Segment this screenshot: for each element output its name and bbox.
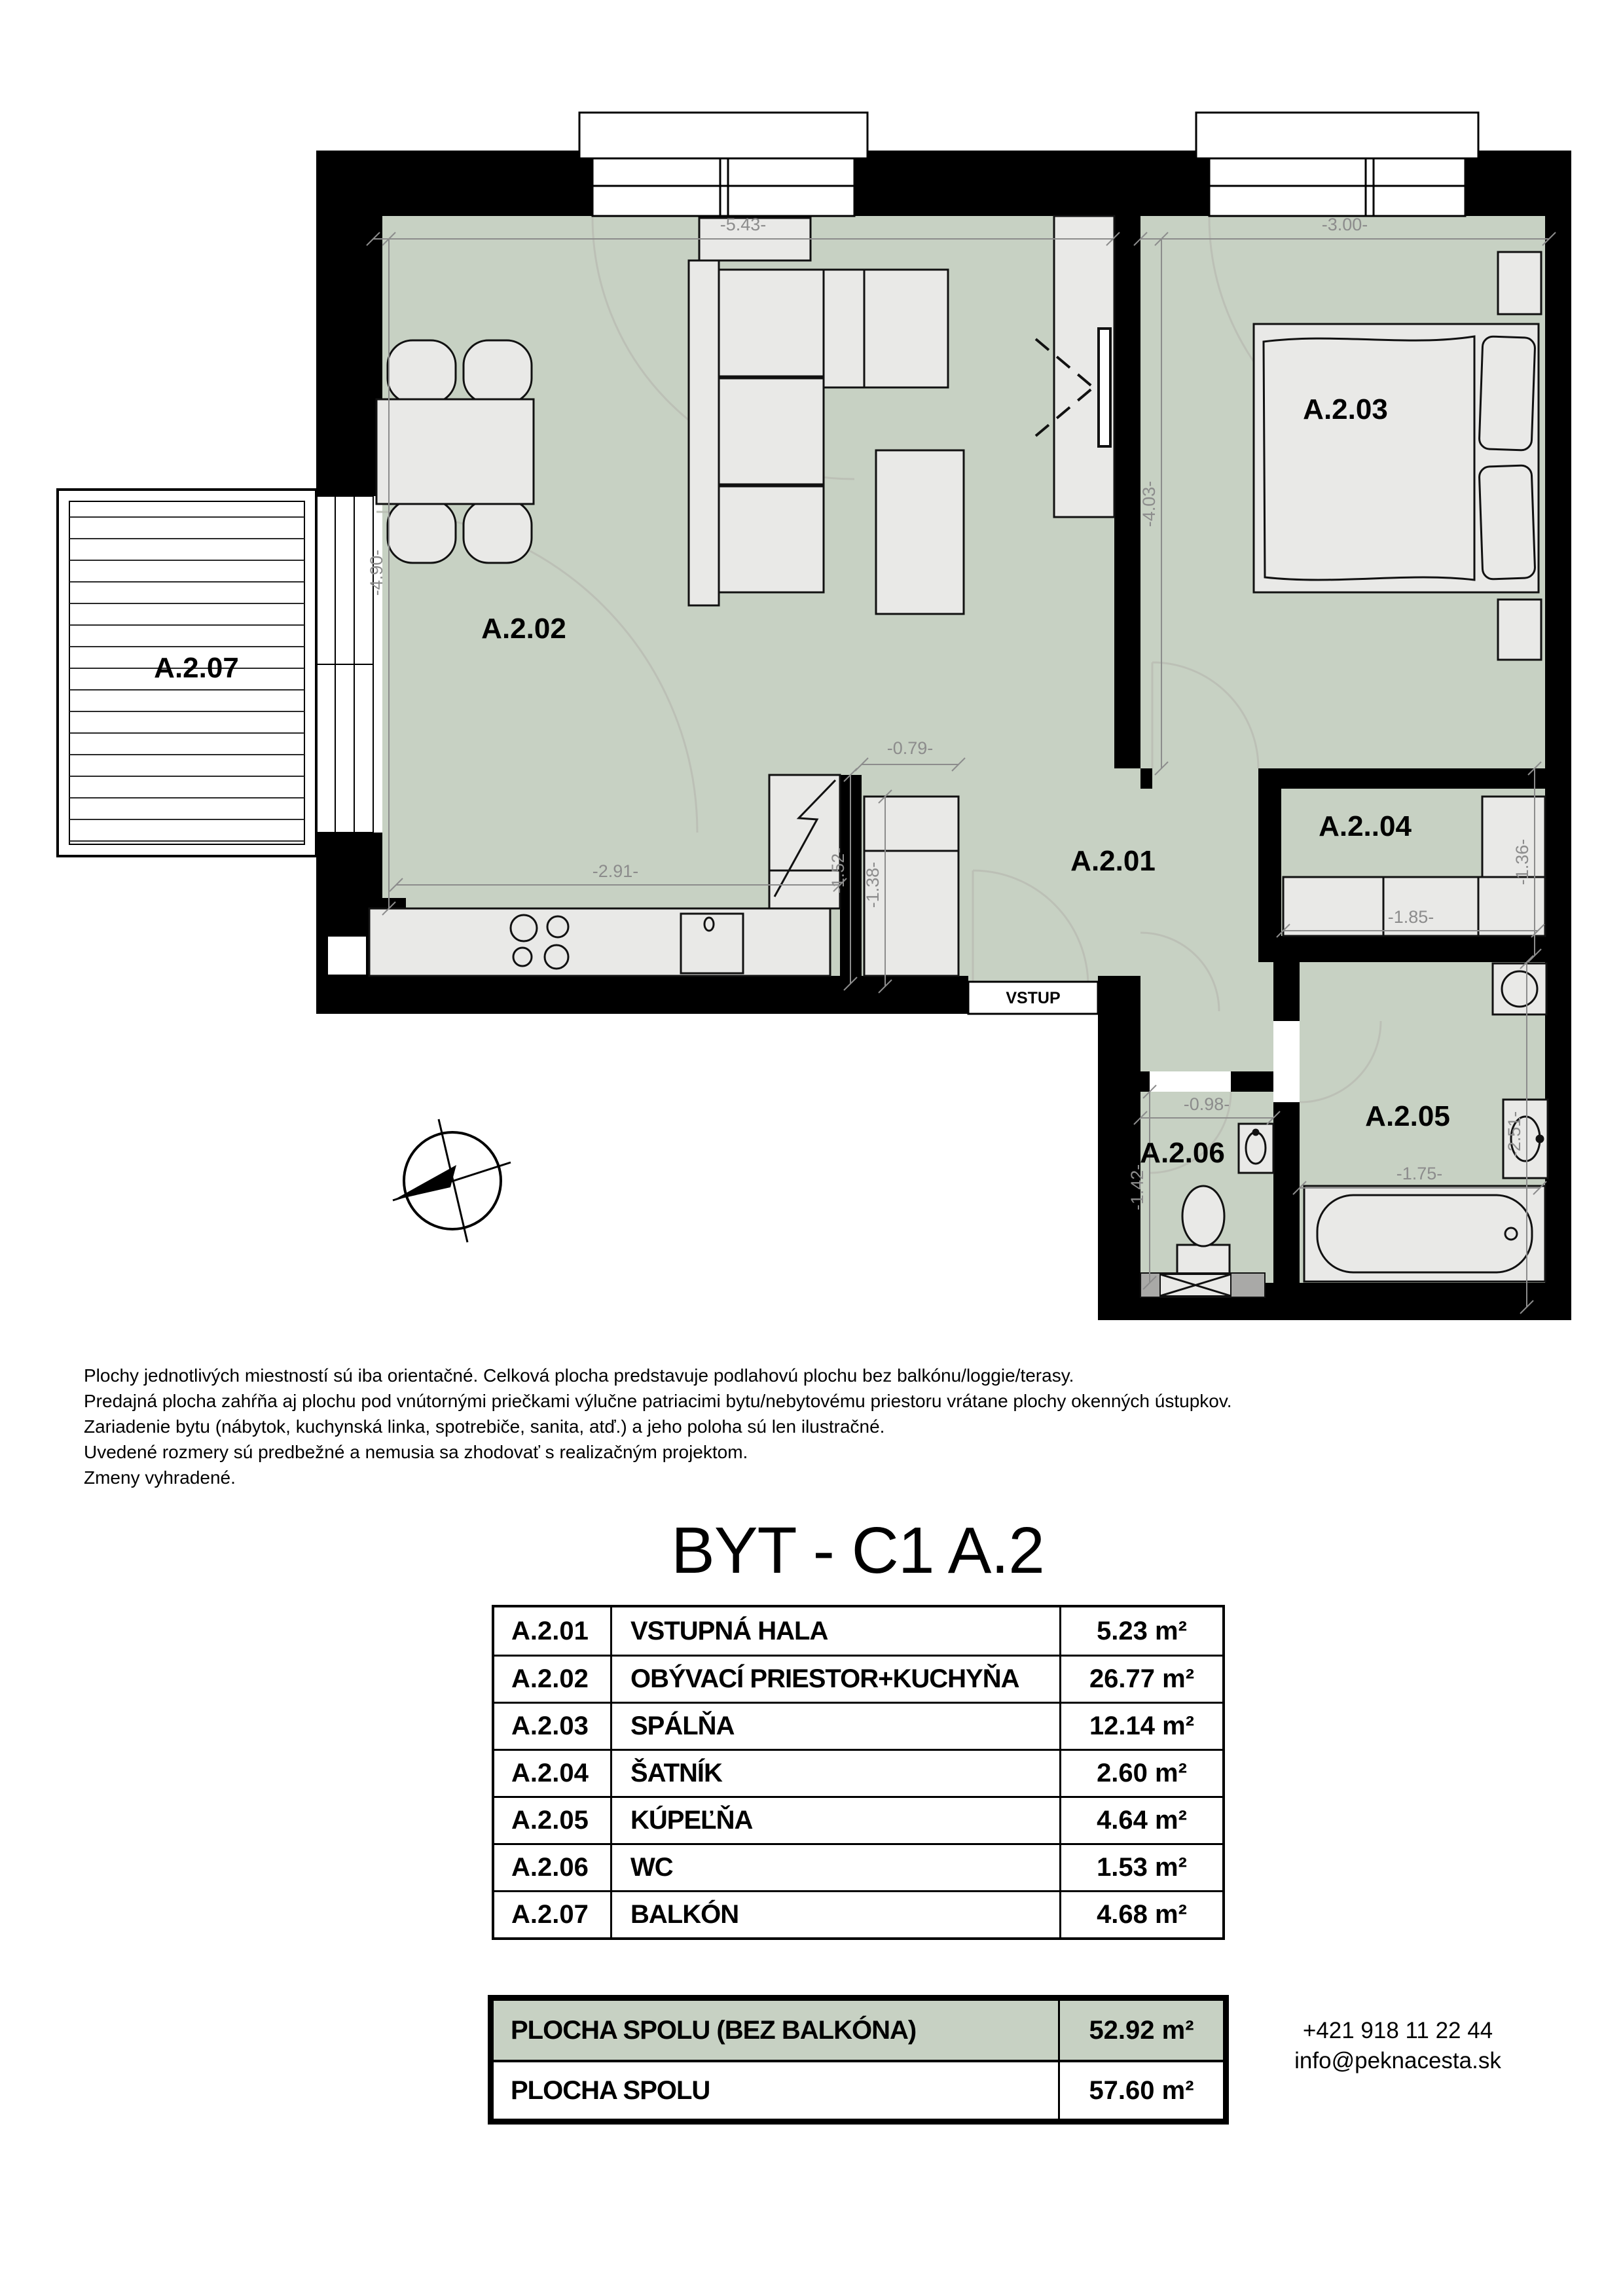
totals-table: PLOCHA SPOLU (BEZ BALKÓNA) 52.92 m² PLOC… [488, 1995, 1229, 2125]
svg-text:-1.75-: -1.75- [1396, 1164, 1443, 1183]
room-area: 12.14 m² [1061, 1704, 1222, 1749]
bathtub [1304, 1186, 1545, 1282]
wc-sink [1239, 1124, 1273, 1173]
disclaimer-line: Predajná plocha zahŕňa aj plochu pod vnú… [84, 1388, 1232, 1414]
sofa-back [689, 260, 719, 605]
living-window [579, 113, 867, 216]
sofa-seat [719, 270, 824, 376]
dining-set [376, 340, 534, 563]
total-row-overall: PLOCHA SPOLU 57.60 m² [494, 2060, 1223, 2119]
contact-block: +421 918 11 22 44 info@peknacesta.sk [1277, 2016, 1519, 2076]
disclaimer-line: Zmeny vyhradené. [84, 1465, 1232, 1490]
chair [464, 500, 532, 563]
sofa-chaise [824, 270, 948, 387]
chair [388, 500, 456, 563]
total-label: PLOCHA SPOLU [494, 2062, 1058, 2119]
pillow [1479, 336, 1535, 451]
room-area: 26.77 m² [1061, 1657, 1222, 1702]
svg-text:-1.42-: -1.42- [1127, 1164, 1147, 1211]
room-area: 4.64 m² [1061, 1798, 1222, 1843]
svg-text:A.2.05: A.2.05 [1365, 1100, 1450, 1132]
svg-text:-1.36-: -1.36- [1512, 839, 1532, 886]
svg-text:-2.51-: -2.51- [1504, 1111, 1524, 1158]
compass-needle [393, 1165, 456, 1200]
total-row-without-balcony: PLOCHA SPOLU (BEZ BALKÓNA) 52.92 m² [494, 2001, 1223, 2060]
svg-text:-4.90-: -4.90- [367, 550, 386, 596]
table-row: A.2.02 OBÝVACÍ PRIESTOR+KUCHYŇA 26.77 m² [494, 1655, 1222, 1702]
room-name: OBÝVACÍ PRIESTOR+KUCHYŇA [612, 1657, 1061, 1702]
room-area: 4.68 m² [1061, 1892, 1222, 1937]
table-row: A.2.07 BALKÓN 4.68 m² [494, 1890, 1222, 1937]
shaft-box [327, 936, 367, 975]
disclaimer-line: Plochy jednotlivých miestností sú iba or… [84, 1363, 1232, 1388]
contact-phone: +421 918 11 22 44 [1277, 2016, 1519, 2046]
room-code: A.2.01 [494, 1607, 612, 1655]
disclaimer-line: Uvedené rozmery sú predbežné a nemusia s… [84, 1439, 1232, 1465]
entrance-label: VSTUP [1006, 989, 1060, 1007]
room-area: 5.23 m² [1061, 1607, 1222, 1655]
table-row: A.2.06 WC 1.53 m² [494, 1843, 1222, 1890]
disclaimer-notes: Plochy jednotlivých miestností sú iba or… [84, 1363, 1232, 1490]
svg-text:-3.00-: -3.00- [1322, 215, 1368, 234]
svg-text:A.2.06: A.2.06 [1140, 1137, 1225, 1169]
table-row: A.2.01 VSTUPNÁ HALA 5.23 m² [494, 1607, 1222, 1655]
page-title: BYT - C1 A.2 [484, 1513, 1231, 1588]
table-row: A.2.05 KÚPEĽŇA 4.64 m² [494, 1796, 1222, 1843]
svg-text:-4.03-: -4.03- [1139, 481, 1159, 528]
disclaimer-line: Zariadenie bytu (nábytok, kuchynská link… [84, 1414, 1232, 1439]
room-code: A.2.04 [494, 1751, 612, 1796]
kitchen-sink [681, 914, 743, 973]
svg-text:-1.38-: -1.38- [863, 862, 883, 908]
total-area: 57.60 m² [1058, 2062, 1223, 2119]
room-name: KÚPEĽŇA [612, 1798, 1061, 1843]
toilet [1177, 1186, 1230, 1275]
svg-text:-1.85-: -1.85- [1388, 907, 1434, 927]
room-name: ŠATNÍK [612, 1751, 1061, 1796]
room-name: BALKÓN [612, 1892, 1061, 1937]
table-row: A.2.03 SPÁLŇA 12.14 m² [494, 1702, 1222, 1749]
floorplan-page: VSTUP [0, 0, 1623, 2296]
chair [464, 340, 532, 403]
svg-text:A.2.01: A.2.01 [1070, 845, 1156, 877]
area-table: A.2.01 VSTUPNÁ HALA 5.23 m² A.2.02 OBÝVA… [492, 1605, 1225, 1940]
balcony-door [316, 496, 373, 833]
sofa-seat [719, 378, 824, 484]
room-area: 1.53 m² [1061, 1845, 1222, 1890]
compass-rose [393, 1119, 511, 1242]
nightstand [1498, 252, 1541, 314]
svg-text:A.2.02: A.2.02 [481, 613, 566, 645]
dining-table [376, 399, 534, 504]
room-name: WC [612, 1845, 1061, 1890]
vent-shaft [1140, 1273, 1265, 1297]
washing-machine [1493, 963, 1546, 1014]
svg-text:-5.43-: -5.43- [720, 215, 767, 234]
corridor-floor [1140, 768, 1273, 1071]
svg-text:-0.98-: -0.98- [1184, 1094, 1230, 1114]
kitchen-counter [369, 908, 830, 976]
svg-text:-0.79-: -0.79- [887, 738, 934, 758]
floorplan-drawing: VSTUP [0, 0, 1623, 1348]
total-label: PLOCHA SPOLU (BEZ BALKÓNA) [494, 2001, 1058, 2060]
contact-email: info@peknacesta.sk [1277, 2046, 1519, 2076]
svg-text:A.2.07: A.2.07 [154, 652, 239, 684]
total-area: 52.92 m² [1058, 2001, 1223, 2060]
chair [388, 340, 456, 403]
svg-text:A.2.03: A.2.03 [1303, 393, 1388, 425]
duvet [1264, 336, 1474, 580]
svg-text:-1.52-: -1.52- [828, 848, 848, 894]
entrance: VSTUP [968, 982, 1098, 1014]
sofa-seat [719, 486, 824, 592]
svg-text:-2.91-: -2.91- [593, 861, 639, 881]
room-code: A.2.07 [494, 1892, 612, 1937]
nightstand [1498, 600, 1541, 660]
tv-screen [1099, 329, 1110, 446]
room-code: A.2.03 [494, 1704, 612, 1749]
room-code: A.2.06 [494, 1845, 612, 1890]
room-name: VSTUPNÁ HALA [612, 1607, 1061, 1655]
bedroom-window [1196, 113, 1478, 216]
room-code: A.2.02 [494, 1657, 612, 1702]
coffee-table [876, 450, 964, 614]
pillow [1479, 465, 1535, 580]
room-area: 2.60 m² [1061, 1751, 1222, 1796]
room-name: SPÁLŇA [612, 1704, 1061, 1749]
svg-text:A.2..04: A.2..04 [1319, 810, 1412, 842]
room-code: A.2.05 [494, 1798, 612, 1843]
table-row: A.2.04 ŠATNÍK 2.60 m² [494, 1749, 1222, 1796]
